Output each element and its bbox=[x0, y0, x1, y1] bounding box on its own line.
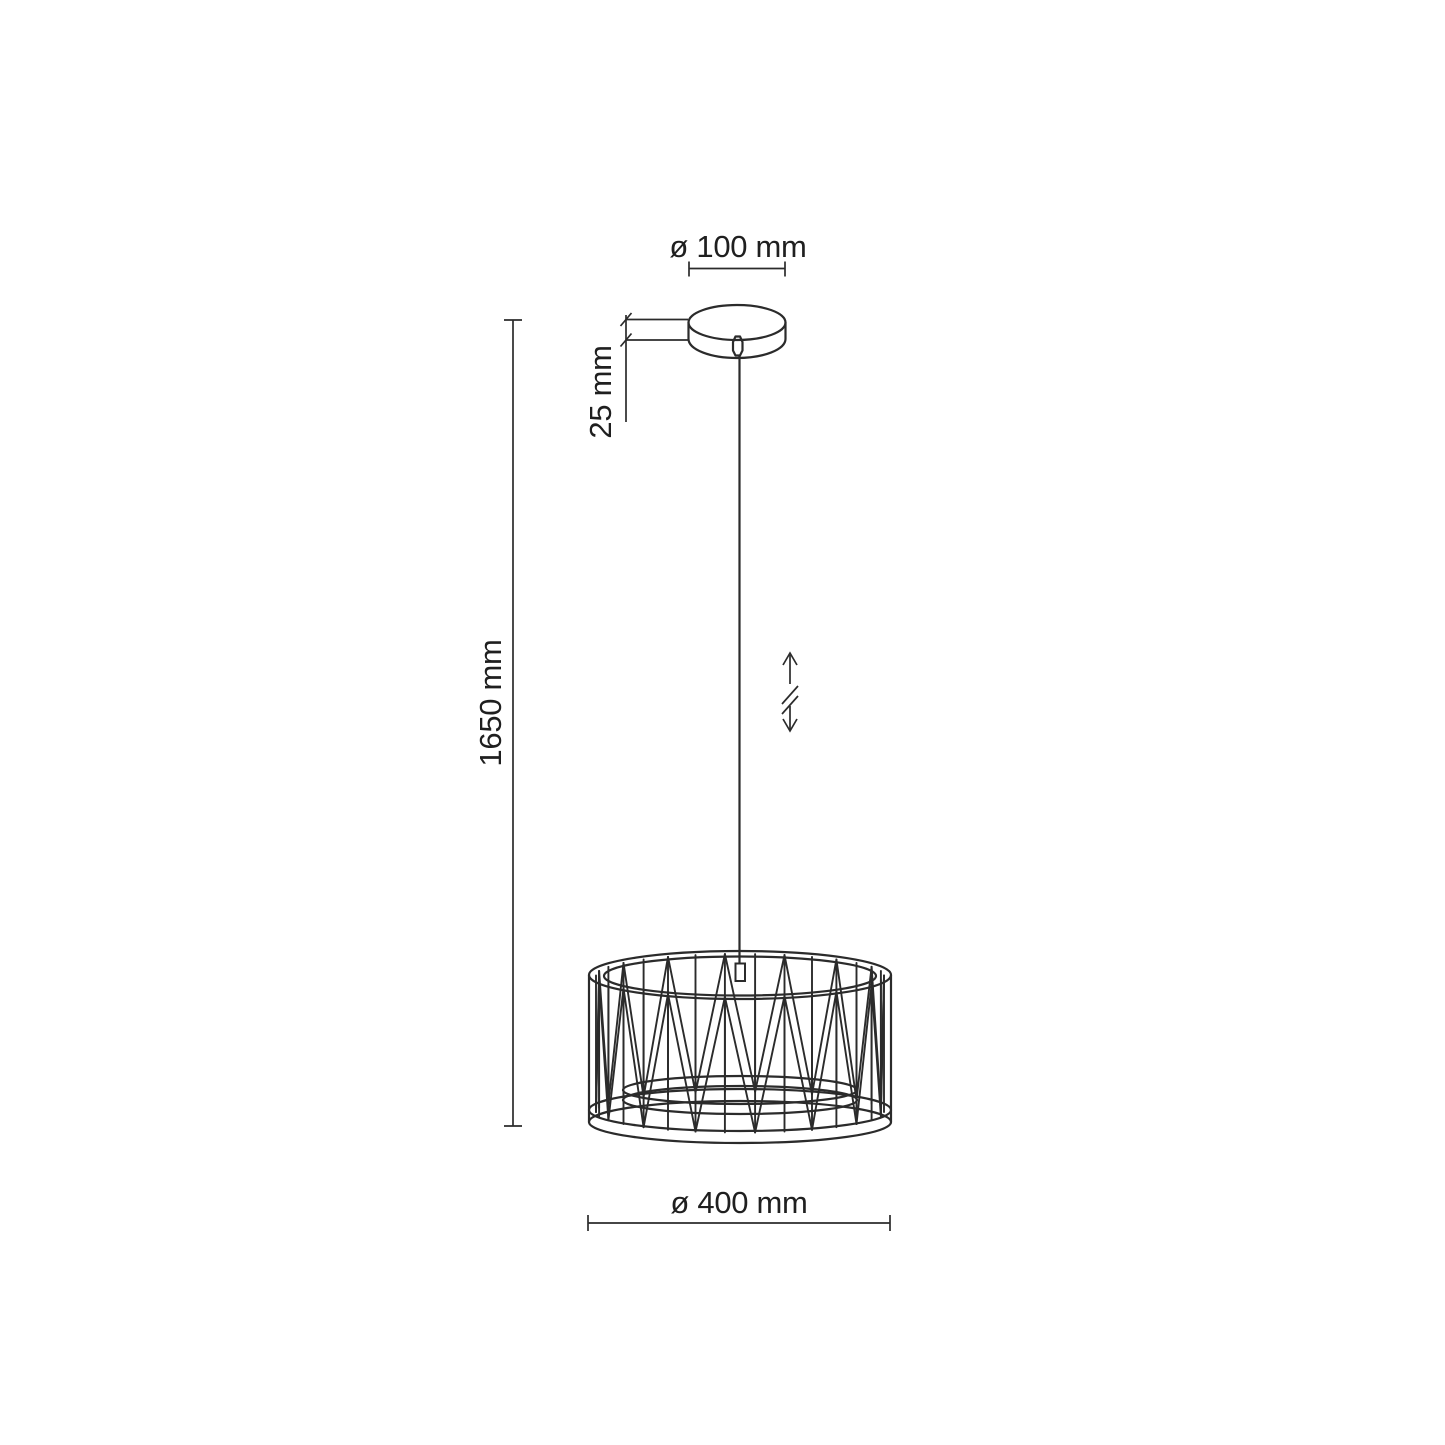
shade-strand-wire bbox=[836, 960, 856, 1101]
shade-bottom-outer-rim bbox=[589, 1101, 891, 1143]
lampshade-drawing bbox=[589, 951, 891, 1143]
shade-strand-wire bbox=[644, 957, 668, 1097]
height-adjustment-arrow-icon bbox=[782, 653, 798, 731]
shade-strand-wire bbox=[755, 955, 784, 1092]
shade-strand-wire bbox=[857, 984, 872, 1124]
canopy-diameter-label: ø 100 mm bbox=[669, 229, 806, 265]
break-slash-1 bbox=[782, 686, 798, 704]
canopy-drawing bbox=[689, 305, 786, 358]
technical-drawing-page: ø 100 mm 25 mm 1650 mm ø 400 mm bbox=[0, 0, 1445, 1445]
shade-strand-wire bbox=[696, 997, 725, 1132]
shade-strand-wire bbox=[599, 971, 608, 1104]
shade-strand-wire bbox=[608, 988, 623, 1120]
canopy-height-label: 25 mm bbox=[583, 345, 619, 438]
overall-height-label: 1650 mm bbox=[473, 639, 509, 766]
shade-strand-wire bbox=[755, 996, 784, 1133]
shade-strand-wire bbox=[812, 960, 836, 1095]
shade-strand-wire bbox=[696, 954, 725, 1092]
shade-strand-wire bbox=[785, 996, 813, 1130]
wire-shade-connector bbox=[736, 964, 746, 982]
shade-strand-wire bbox=[725, 997, 755, 1133]
shade-strand-wire bbox=[785, 955, 813, 1094]
canopy-top-ellipse bbox=[689, 305, 786, 340]
shade-strand-wire bbox=[624, 963, 644, 1097]
shade-strand-wire bbox=[872, 967, 881, 1108]
canopy-height-dimension bbox=[621, 313, 689, 422]
shade-strand-wire bbox=[668, 957, 696, 1093]
shade-diameter-label: ø 400 mm bbox=[670, 1185, 807, 1221]
shade-strand-wire bbox=[644, 994, 668, 1127]
pendant-lamp-drawing bbox=[0, 0, 1445, 1445]
